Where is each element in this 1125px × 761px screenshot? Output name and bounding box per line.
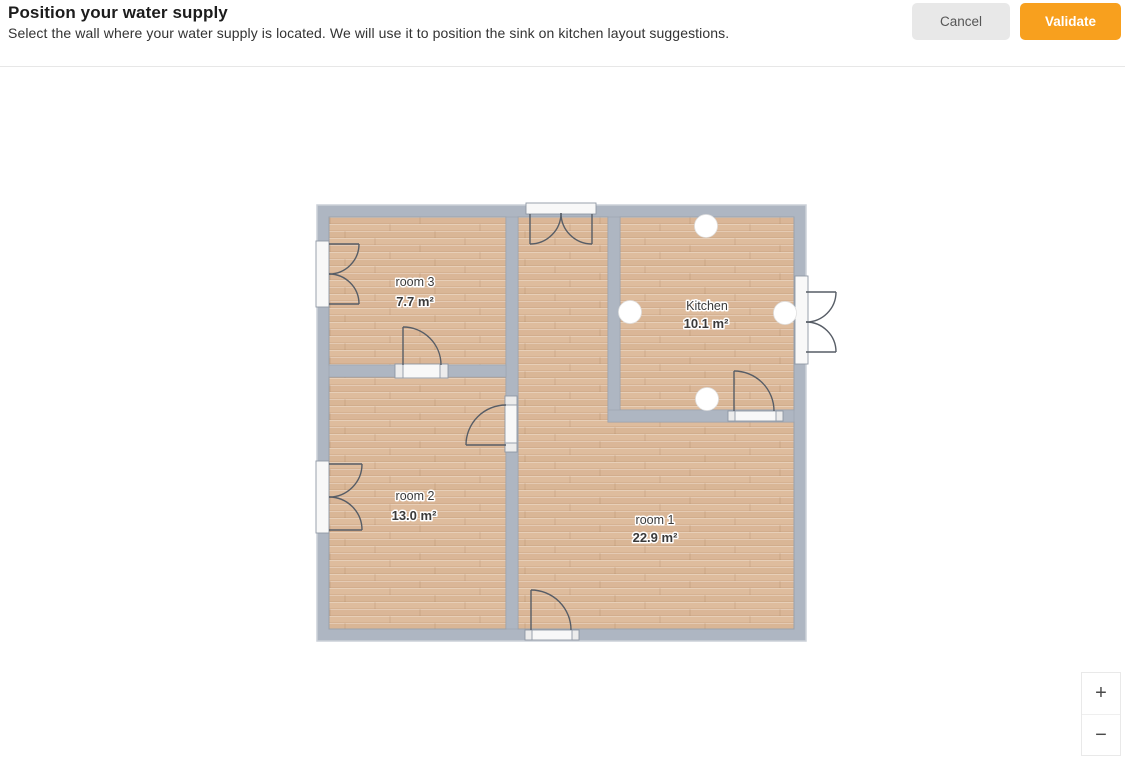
- kitchen-right-door-sill: [795, 276, 808, 364]
- room-1-label: room 1: [636, 513, 675, 527]
- room-3-label: room 3: [396, 275, 435, 289]
- water-supply-screen: Position your water supply Select the wa…: [0, 0, 1125, 761]
- entrance-door-sill: [526, 203, 596, 214]
- floor-plan-canvas[interactable]: room 3 7.7 m² Kitchen 10.1 m² room 2 13.…: [0, 0, 1125, 761]
- cancel-button[interactable]: Cancel: [912, 3, 1010, 40]
- room-2-label: room 2: [396, 489, 435, 503]
- room-2-area: 13.0 m²: [392, 508, 437, 523]
- zoom-out-button[interactable]: −: [1082, 715, 1120, 756]
- door-jamb: [505, 443, 517, 452]
- supply-point-right-wall[interactable]: [774, 302, 797, 325]
- supply-point-left-wall[interactable]: [619, 301, 642, 324]
- kitchen-left-wall[interactable]: [608, 217, 620, 422]
- page-title: Position your water supply: [8, 3, 228, 23]
- door-jamb: [572, 630, 579, 640]
- door-jamb: [728, 411, 735, 421]
- header: Position your water supply Select the wa…: [0, 0, 1125, 67]
- kitchen-area: 10.1 m²: [684, 316, 729, 331]
- room-1-area: 22.9 m²: [633, 530, 678, 545]
- room-1-bottom-door-sill: [525, 630, 579, 640]
- room-2-left-door-sill: [316, 461, 329, 533]
- supply-point-bottom-wall[interactable]: [696, 388, 719, 411]
- kitchen-bottom-door-sill: [728, 411, 783, 421]
- validate-button[interactable]: Validate: [1020, 3, 1121, 40]
- kitchen-floor: [620, 217, 794, 410]
- supply-point-top-wall[interactable]: [695, 215, 718, 238]
- kitchen-exterior-double-door: [806, 292, 836, 352]
- door-jamb: [525, 630, 532, 640]
- door-jamb: [395, 364, 403, 378]
- zoom-in-button[interactable]: +: [1082, 673, 1120, 714]
- zoom-controls: + −: [1081, 672, 1121, 756]
- door-jamb: [440, 364, 448, 378]
- room-3-area: 7.7 m²: [396, 294, 434, 309]
- door-jamb: [505, 396, 517, 405]
- room-3-left-door-sill: [316, 241, 329, 307]
- kitchen-label: Kitchen: [686, 299, 728, 313]
- door-jamb: [776, 411, 783, 421]
- page-subtitle: Select the wall where your water supply …: [8, 25, 729, 41]
